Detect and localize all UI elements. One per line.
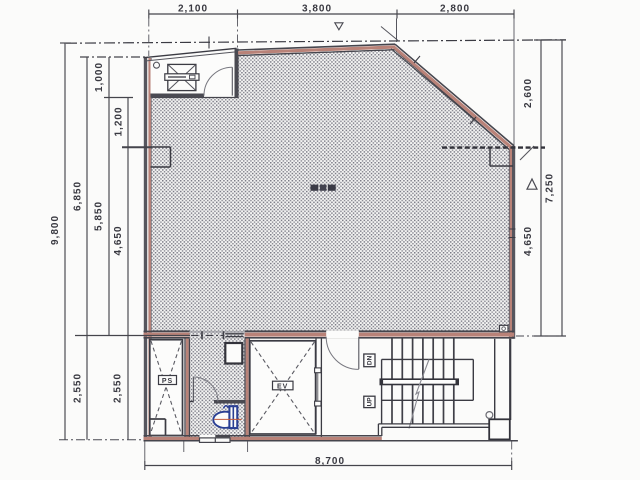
svg-text:2,600: 2,600 <box>523 78 534 108</box>
svg-text:1,000: 1,000 <box>94 62 105 92</box>
svg-text:2,100: 2,100 <box>178 4 208 15</box>
svg-text:EV: EV <box>277 384 288 391</box>
svg-text:2,550: 2,550 <box>73 373 84 403</box>
svg-text:DN: DN <box>367 355 374 365</box>
svg-text:5,850: 5,850 <box>94 201 105 231</box>
svg-text:7,250: 7,250 <box>545 173 556 203</box>
svg-text:6,850: 6,850 <box>73 181 84 211</box>
svg-text:2,550: 2,550 <box>113 373 124 403</box>
svg-text:UP: UP <box>367 397 374 407</box>
svg-text:8,700: 8,700 <box>315 456 345 467</box>
svg-text:4,650: 4,650 <box>113 225 124 255</box>
svg-text:3,800: 3,800 <box>302 4 332 15</box>
svg-text:9,800: 9,800 <box>50 215 61 245</box>
svg-text:1,200: 1,200 <box>114 106 125 136</box>
svg-text:2,800: 2,800 <box>440 4 470 15</box>
svg-text:4,650: 4,650 <box>523 226 534 256</box>
svg-text:PS: PS <box>162 378 173 385</box>
